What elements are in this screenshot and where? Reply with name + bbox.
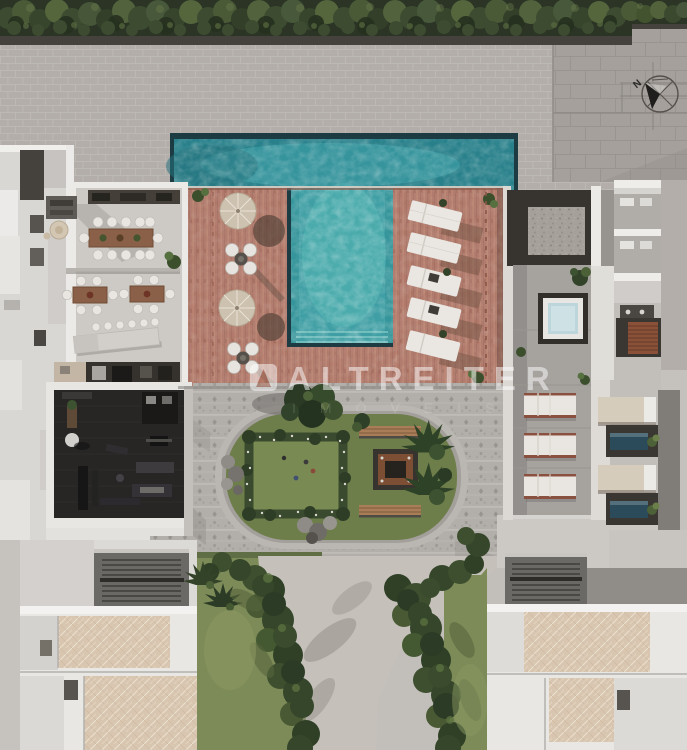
svg-text:IMÓVEIS: IMÓVEIS bbox=[292, 400, 518, 416]
svg-text:ALTREITER: ALTREITER bbox=[287, 360, 560, 397]
